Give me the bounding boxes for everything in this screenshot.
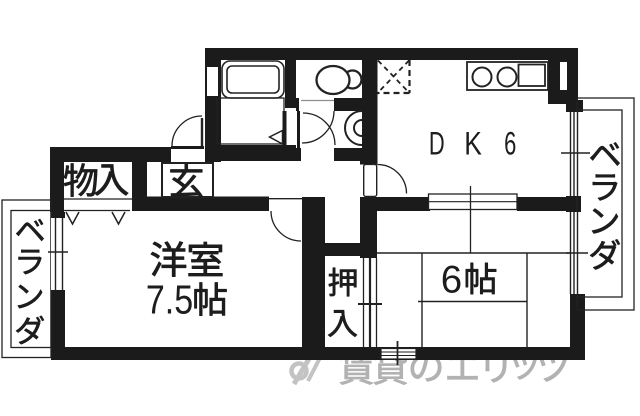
svg-text:6: 6	[504, 125, 516, 161]
svg-text:6: 6	[441, 259, 462, 302]
svg-text:K: K	[464, 126, 482, 162]
svg-text:7.5: 7.5	[146, 277, 193, 323]
svg-text:D: D	[429, 125, 445, 161]
